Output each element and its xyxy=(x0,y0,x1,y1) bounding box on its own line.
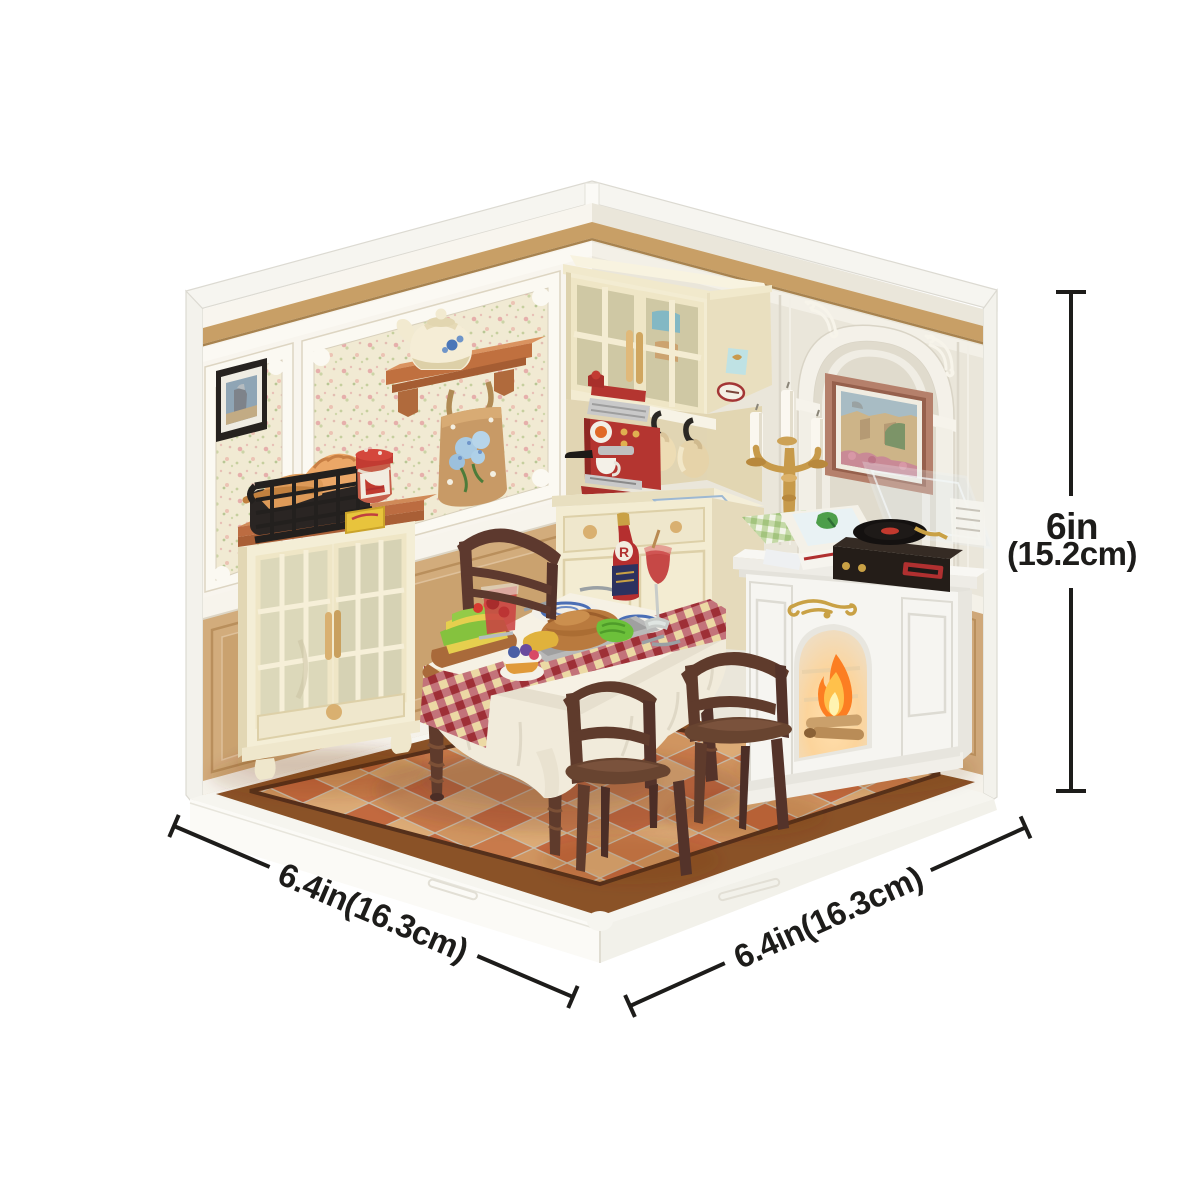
svg-text:(15.2cm): (15.2cm) xyxy=(1007,535,1137,572)
svg-text:R: R xyxy=(619,544,629,560)
